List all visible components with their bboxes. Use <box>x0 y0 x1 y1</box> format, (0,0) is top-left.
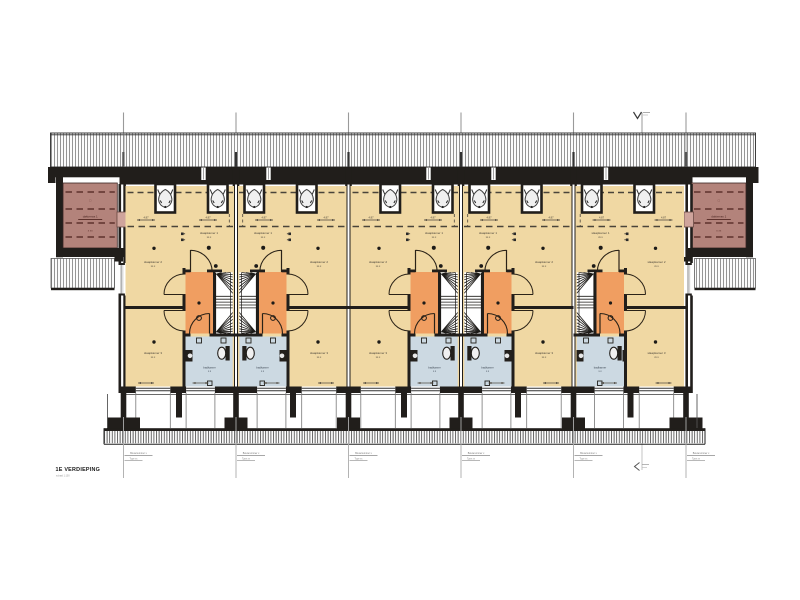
svg-text:slaapkamer 2: slaapkamer 2 <box>369 260 387 264</box>
svg-text:Bouwnummer x: Bouwnummer x <box>130 452 147 455</box>
svg-text:xx.x: xx.x <box>317 265 322 268</box>
svg-text:4.87: 4.87 <box>661 216 667 220</box>
svg-text:slaapkamer 3: slaapkamer 3 <box>535 351 553 355</box>
svg-text:xx.x: xx.x <box>376 265 381 268</box>
svg-text:Bouwnummer x: Bouwnummer x <box>355 452 372 455</box>
svg-text:Bouwnummer x: Bouwnummer x <box>693 452 710 455</box>
svg-text:slaapkamer 2: slaapkamer 2 <box>647 260 665 264</box>
svg-text:4.87: 4.87 <box>143 216 149 220</box>
svg-text:Type xx: Type xx <box>692 458 701 460</box>
svg-text:Type xx: Type xx <box>355 458 364 460</box>
svg-text:slaapkamer 1: slaapkamer 1 <box>479 231 497 235</box>
svg-text:□: □ <box>718 199 720 203</box>
svg-text:slaapkamer 3: slaapkamer 3 <box>647 351 665 355</box>
svg-text:Bouwnummer x: Bouwnummer x <box>468 452 485 455</box>
svg-text:xx.x: xx.x <box>542 265 547 268</box>
svg-text:schaal 1:100: schaal 1:100 <box>56 475 70 478</box>
svg-text:4.87: 4.87 <box>261 216 267 220</box>
svg-text:xx.x: xx.x <box>654 356 659 359</box>
svg-text:Bouwnummer x: Bouwnummer x <box>243 452 260 455</box>
svg-text:slaapkamer 2: slaapkamer 2 <box>535 260 553 264</box>
svg-text:Bouwnummer x: Bouwnummer x <box>580 452 597 455</box>
svg-text:x xx: x xx <box>88 229 94 233</box>
svg-text:4.87: 4.87 <box>599 216 605 220</box>
svg-text:dakterras 1: dakterras 1 <box>83 215 98 219</box>
svg-text:xx.x: xx.x <box>151 265 156 268</box>
svg-text:xx.x: xx.x <box>317 356 322 359</box>
svg-text:slaapkamer 1: slaapkamer 1 <box>591 231 609 235</box>
svg-text:Type xx: Type xx <box>130 458 139 460</box>
svg-text:xx.x: xx.x <box>261 236 266 239</box>
svg-text:Type xx: Type xx <box>467 458 476 460</box>
svg-text:slaapkamer 3: slaapkamer 3 <box>144 351 162 355</box>
svg-text:x xx: x xx <box>716 229 722 233</box>
svg-text:badkamer: badkamer <box>481 366 494 370</box>
svg-text:badkamer: badkamer <box>428 366 441 370</box>
svg-text:4.87: 4.87 <box>323 216 329 220</box>
svg-text:xx.x: xx.x <box>207 236 212 239</box>
svg-text:4.87: 4.87 <box>205 216 211 220</box>
svg-text:xx.x: xx.x <box>486 236 491 239</box>
svg-text:4.87: 4.87 <box>548 216 554 220</box>
svg-text:4.87: 4.87 <box>368 216 374 220</box>
svg-text:xx.x: xx.x <box>151 356 156 359</box>
svg-text:badkamer: badkamer <box>256 366 269 370</box>
svg-text:1E VERDIEPING: 1E VERDIEPING <box>56 467 101 473</box>
svg-text:badkamer: badkamer <box>594 366 607 370</box>
svg-text:xx.x: xx.x <box>654 265 659 268</box>
svg-text:slaapkamer 3: slaapkamer 3 <box>310 351 328 355</box>
svg-text:slaapkamer 1: slaapkamer 1 <box>425 231 443 235</box>
svg-text:4.87: 4.87 <box>430 216 436 220</box>
svg-text:Type xx: Type xx <box>242 458 251 460</box>
svg-text:4.87: 4.87 <box>486 216 492 220</box>
svg-text:□: □ <box>89 199 91 203</box>
svg-text:dakterras 1: dakterras 1 <box>711 215 726 219</box>
svg-text:xx.x: xx.x <box>598 236 603 239</box>
svg-text:xx.x: xx.x <box>432 236 437 239</box>
svg-text:badkamer: badkamer <box>203 366 216 370</box>
svg-text:slaapkamer 2: slaapkamer 2 <box>310 260 328 264</box>
svg-text:slaapkamer 2: slaapkamer 2 <box>144 260 162 264</box>
svg-text:slaapkamer 1: slaapkamer 1 <box>254 231 272 235</box>
svg-text:xx.x: xx.x <box>376 356 381 359</box>
svg-text:slaapkamer 3: slaapkamer 3 <box>369 351 387 355</box>
svg-text:Type xx: Type xx <box>580 458 589 460</box>
svg-text:xx.x: xx.x <box>542 356 547 359</box>
svg-text:slaapkamer 1: slaapkamer 1 <box>200 231 218 235</box>
